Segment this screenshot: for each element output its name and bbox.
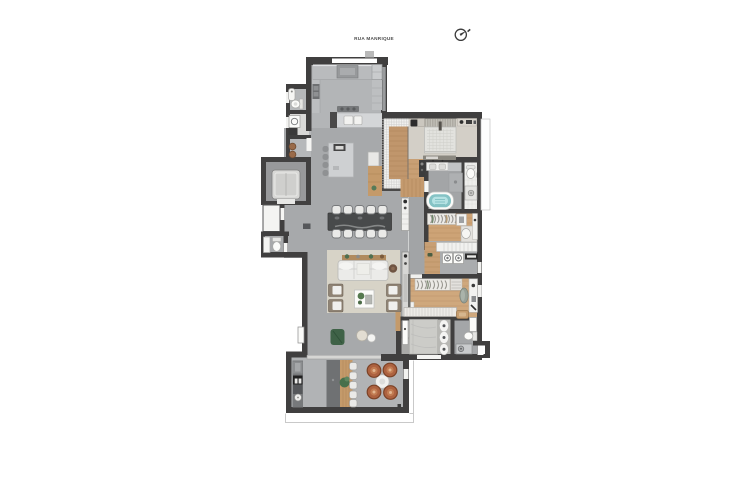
svg-text:RUA MANRIQUE: RUA MANRIQUE: [354, 36, 394, 41]
